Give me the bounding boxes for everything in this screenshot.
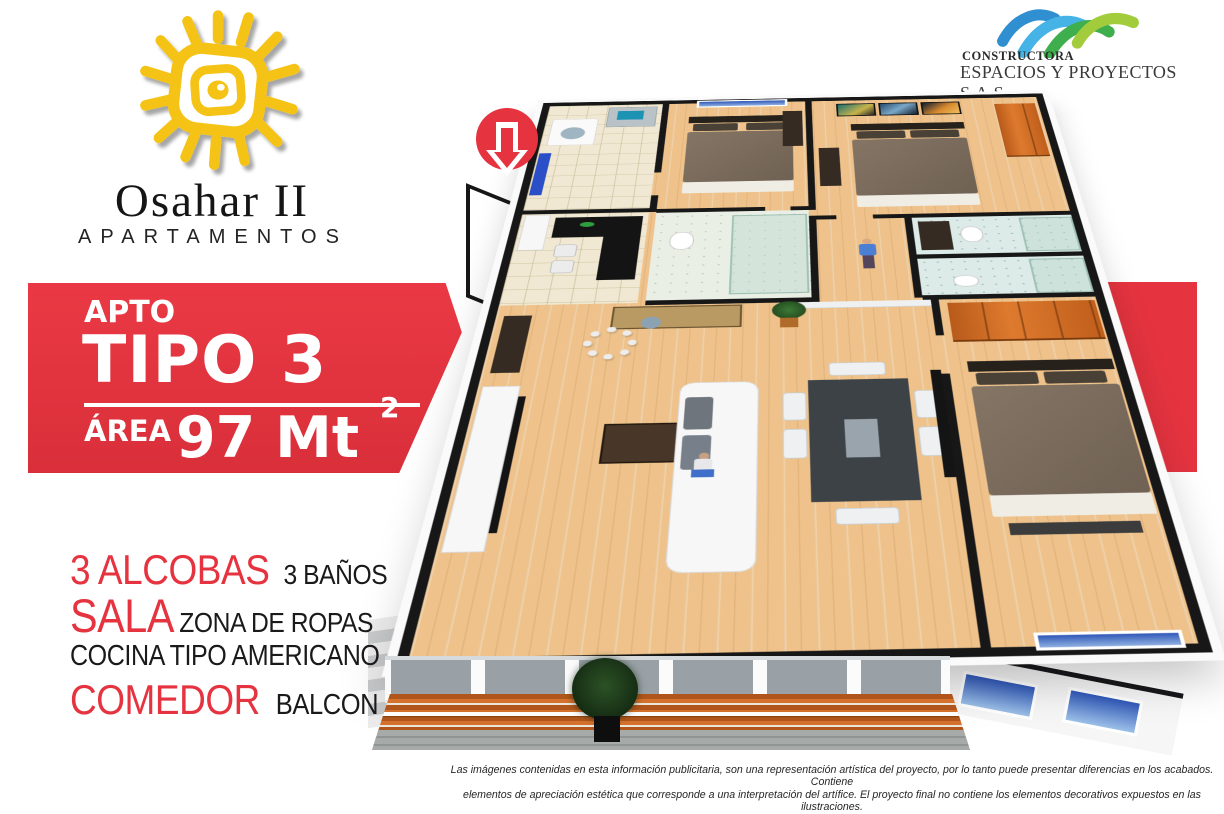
feature-cocina: COCINA TIPO AMERICANO [70,640,379,673]
bench [610,304,742,329]
dining-chair [835,507,900,525]
disclaimer-line1: Las imágenes contenidas en esta informac… [440,764,1224,789]
wardrobe [994,103,1050,157]
feature-row: 3 ALCOBAS 3 BAÑOS [70,546,387,594]
ring-mirror [580,327,638,360]
area-value: 97 Mt [176,405,359,471]
pillow [910,129,960,137]
person-standing-shirt [859,244,877,256]
dining-chair [828,362,886,376]
feature-banos: 3 BAÑOS [284,559,388,591]
dresser [783,111,804,146]
sofa-cushion [683,397,713,430]
person-sitting-legs [691,469,714,477]
balcony-railing [378,712,964,716]
shelf [490,315,532,373]
window [696,99,787,108]
bed-sheet [682,180,794,193]
dining-chair [782,392,806,420]
apartment-type-banner: APTO TIPO 3 ÁREA 97 Mt 2 [28,283,492,473]
shower [729,214,810,295]
bathroom-vanity [918,221,954,250]
pillow [975,372,1039,385]
exterior-wall-windows [936,648,1184,756]
bed-sheet [857,193,981,207]
area-superscript: 2 [380,391,399,424]
bed [852,138,978,196]
poster-root: Osahar II APARTAMENTOS CONSTRUCTORA ESPA… [0,0,1224,792]
plant [772,301,806,319]
feature-row: COCINA TIPO AMERICANO [70,640,379,673]
balcony-base [372,730,970,750]
dining-chair [783,429,808,459]
type-title: TIPO 3 [82,323,327,398]
wall [790,206,808,210]
pillow [693,123,738,131]
window [1033,630,1186,651]
disclaimer-line2: elementos de apreciación estética que co… [440,789,1224,814]
shower [1028,258,1094,293]
balcony-plant-pot [594,716,620,742]
area-label: ÁREA [84,414,171,448]
plant-pot [780,317,798,327]
window [957,670,1038,720]
wall [931,300,944,336]
entrance-arrow-icon [474,106,540,182]
window [1062,687,1143,737]
dining-table-runner [844,419,880,458]
feature-balcon: BALCON [276,689,378,722]
wall [809,220,820,300]
wall [805,101,816,210]
bar-stool [549,260,575,273]
brand-name: Osahar II [60,174,364,228]
kitchen-island [551,216,643,238]
feature-comedor: COMEDOR [70,676,260,724]
pillow [1043,371,1108,384]
wall-painting [920,102,962,115]
laundry-sink [617,111,645,120]
person-standing-pants [862,255,875,268]
wardrobe [947,300,1106,342]
disclaimer-text: Las imágenes contenidas en esta informac… [440,764,1224,814]
feature-row: COMEDOR BALCON [70,676,378,724]
feature-zona-ropas: ZONA DE ROPAS [179,607,373,639]
balcony-plant [572,658,638,720]
feature-sala: SALA [70,588,174,643]
pillow [856,130,906,138]
washing-machine [547,119,599,146]
balcony-deck [372,694,970,750]
bathroom-sink [953,275,980,287]
dresser [819,148,842,186]
wall-painting [878,102,919,115]
feature-alcobas: 3 ALCOBAS [70,546,269,594]
wall-painting [836,103,876,116]
brand-subtitle: APARTAMENTOS [58,226,368,249]
bed [683,130,794,182]
bed-bench [1008,521,1143,535]
bar-stool [553,244,578,257]
feature-row: SALA ZONA DE ROPAS [70,588,373,643]
sun-logo-icon [118,6,318,178]
kitchen-island [596,236,641,280]
shower [1018,217,1081,252]
bed-sheet [989,492,1157,516]
bed [971,384,1151,496]
